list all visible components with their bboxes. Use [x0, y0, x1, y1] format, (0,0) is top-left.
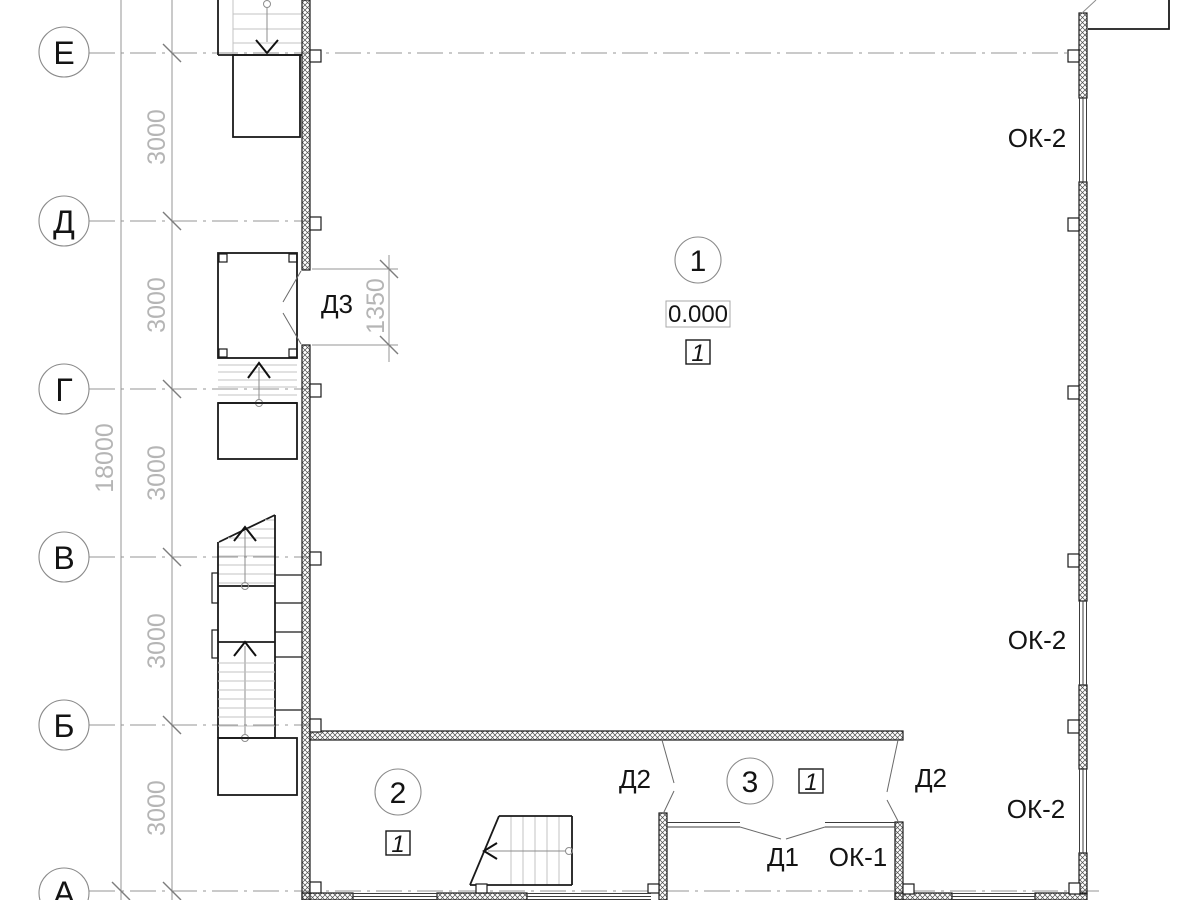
- stair-mid-flight: [218, 363, 297, 459]
- axis-bubbles: Е Д Г В Б А: [39, 27, 89, 900]
- door-d2-right-swing: [887, 740, 898, 821]
- window-ok2-mid: [1080, 601, 1087, 685]
- window-ok2-top: [1080, 98, 1087, 182]
- dim-text-18000: 18000: [91, 423, 119, 493]
- door-d2-left-swing: [662, 740, 674, 814]
- window-ok1-sill: [667, 823, 895, 828]
- room-marks: 1 0.000 1 2 1 3 1: [375, 237, 823, 858]
- axis-label-v: В: [53, 540, 74, 576]
- bottom-wall-1: [302, 893, 353, 900]
- dimension-grid: 1350 3000 3000 3000 3000 3000 3000 18000: [89, 0, 1100, 900]
- room-3-number: 3: [742, 766, 759, 799]
- window-ok2-low: [1080, 769, 1087, 853]
- axis-label-g: Г: [55, 372, 72, 408]
- left-wall-upper: [302, 0, 310, 270]
- opening-labels: Д3 Д2 Д2 Д1 ОК-1 ОК-2 ОК-2 ОК-2: [321, 123, 1066, 872]
- window-label-ok2-top: ОК-2: [1008, 123, 1067, 153]
- partition-pier-left: [659, 813, 667, 900]
- stair-entrance: [470, 816, 573, 885]
- bottom-wall-2: [437, 893, 527, 900]
- floor-plan-drawing: 1350 3000 3000 3000 3000 3000 3000 18000…: [0, 0, 1200, 900]
- floor-type-3: 1: [804, 769, 817, 796]
- right-wall-1: [1079, 13, 1087, 98]
- dimension-texts: 3000 3000 3000 3000 3000 3000 18000: [91, 0, 171, 836]
- axis-label-b: Б: [54, 708, 75, 744]
- axis-label-e: Е: [53, 35, 74, 71]
- interior-wall-horizontal: [310, 731, 903, 740]
- door-label-d3: Д3: [321, 289, 353, 319]
- door-label-d1: Д1: [767, 842, 799, 872]
- door-label-d2-right: Д2: [915, 763, 947, 793]
- left-wall-lower: [302, 345, 310, 900]
- window-bottom-3: [952, 894, 1035, 900]
- dim-text-1350: 1350: [362, 278, 390, 334]
- right-wall-3: [1079, 685, 1087, 769]
- door-d1-swing: [740, 827, 825, 839]
- pilaster-marks: [310, 50, 1080, 894]
- stair-vestibule-d3: [218, 253, 297, 358]
- axis-label-a: А: [53, 875, 75, 900]
- dim-text-3000-3: 3000: [143, 445, 171, 501]
- right-wall-2: [1079, 182, 1087, 601]
- room-2-number: 2: [390, 777, 407, 810]
- partition-pier-right: [895, 822, 903, 900]
- door-swings: [283, 271, 898, 839]
- dim-text-3000-1: 3000: [143, 109, 171, 165]
- dim-text-3000-4: 3000: [143, 613, 171, 669]
- windows: [353, 98, 1087, 900]
- stair-landing-low: [218, 738, 297, 795]
- window-bottom-1: [353, 894, 437, 900]
- window-label-ok2-mid: ОК-2: [1008, 625, 1067, 655]
- floor-type-2: 1: [391, 831, 404, 858]
- floor-type-1: 1: [691, 340, 704, 367]
- window-bottom-2: [527, 894, 651, 900]
- stair-top: [218, 0, 302, 137]
- axis-label-d: Д: [53, 204, 75, 240]
- walls: [302, 0, 1087, 900]
- window-label-ok2-low: ОК-2: [1007, 794, 1066, 824]
- duct-shaft-strip: [275, 575, 302, 710]
- dim-text-3000-5: 3000: [143, 780, 171, 836]
- door-d3-swing: [283, 271, 301, 344]
- porch-outline: [1082, 0, 1169, 29]
- stair-landing-top: [233, 55, 300, 137]
- stair-landing-mid: [218, 403, 297, 459]
- room-1-number: 1: [690, 245, 707, 278]
- elevation-value: 0.000: [668, 301, 728, 328]
- door-label-d2-left: Д2: [619, 764, 651, 794]
- dim-text-3000-2: 3000: [143, 277, 171, 333]
- window-label-ok1: ОК-1: [829, 842, 888, 872]
